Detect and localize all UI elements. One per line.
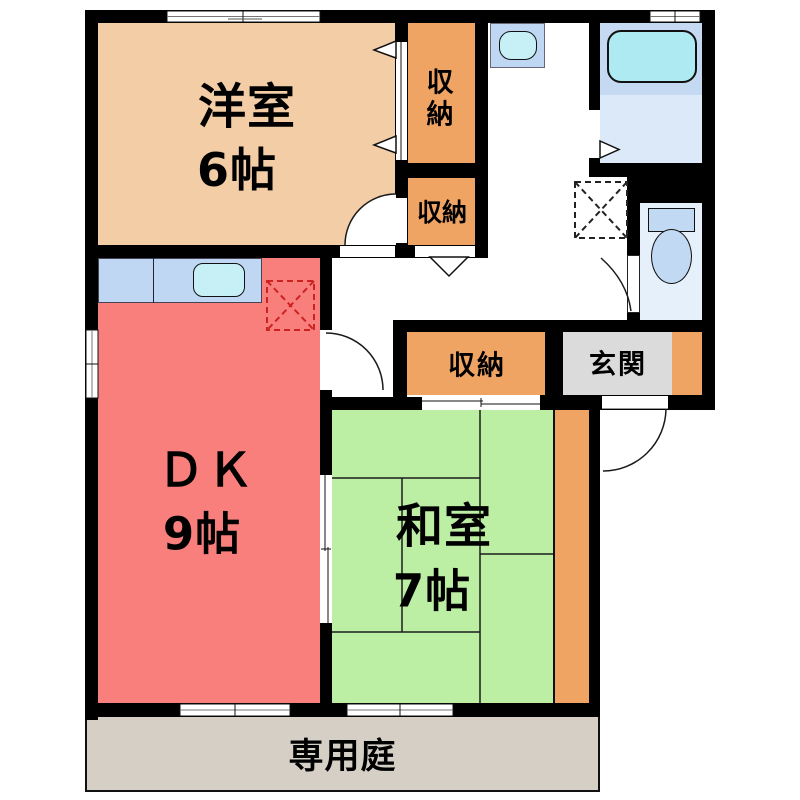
floorplan: 専用庭 — [0, 0, 800, 800]
wall-closet-divider — [395, 163, 488, 178]
bathroom-floor — [600, 95, 702, 163]
wall-hall-bottom — [393, 320, 715, 332]
wall-bottom — [85, 703, 600, 717]
fusuma-closet-washitsu — [422, 396, 540, 409]
closet-lower-opening — [415, 246, 475, 257]
yoshitsu-doorway — [340, 246, 395, 257]
wall-closet-right — [475, 23, 488, 258]
genkan-label: 玄関 — [589, 343, 647, 382]
washing-machine-space-icon — [575, 182, 627, 238]
closet-upper-label: 収納 — [424, 68, 456, 133]
kitchen-counter-divider — [153, 258, 154, 303]
wall-top — [85, 10, 715, 23]
washitsu-size-label: 7帖 — [393, 555, 471, 620]
washitsu-label: 和室 — [396, 488, 492, 557]
veranda-strip — [553, 410, 589, 703]
wall-left — [85, 10, 98, 720]
dk-washitsu-sliding-door — [320, 475, 332, 623]
closet-lower-folddoor-triangle-icon — [430, 257, 468, 276]
genkan-doorway — [602, 396, 668, 409]
wash-basin-bowl — [499, 31, 537, 60]
wall-washitsu-top — [332, 397, 422, 410]
closet-middle-label: 収納 — [448, 344, 506, 383]
wall-right-upper — [702, 10, 715, 410]
dk-door-arc — [326, 333, 383, 390]
bathroom-door-opening — [589, 110, 600, 158]
wall-right-lower — [589, 402, 600, 717]
toilet-door-leaf — [627, 255, 640, 313]
yoshitsu-size-label: 6帖 — [197, 134, 277, 200]
yoshitsu-door-leaf — [396, 198, 407, 243]
entry-door-arc — [603, 409, 666, 471]
garden-label: 専用庭 — [288, 728, 396, 779]
yoshitsu-label: 洋室 — [198, 67, 296, 137]
closet-lower-label: 収納 — [417, 193, 467, 229]
dk-door-leaf — [320, 330, 332, 390]
dk-size-label: 9帖 — [163, 498, 241, 563]
bathtub — [607, 30, 697, 83]
kitchen-sink — [193, 263, 245, 297]
genkan-step — [672, 332, 702, 395]
wall-toilet-top — [627, 177, 715, 203]
wall-fusuma-right — [540, 395, 589, 410]
wall-closetmid-right — [545, 332, 563, 395]
toilet-bowl — [651, 229, 692, 284]
wall-bath-bottom — [589, 163, 715, 177]
garden-area: 専用庭 — [85, 717, 600, 792]
closet-sliding-doors — [396, 42, 407, 160]
dk-label: ＤＫ — [158, 434, 256, 500]
